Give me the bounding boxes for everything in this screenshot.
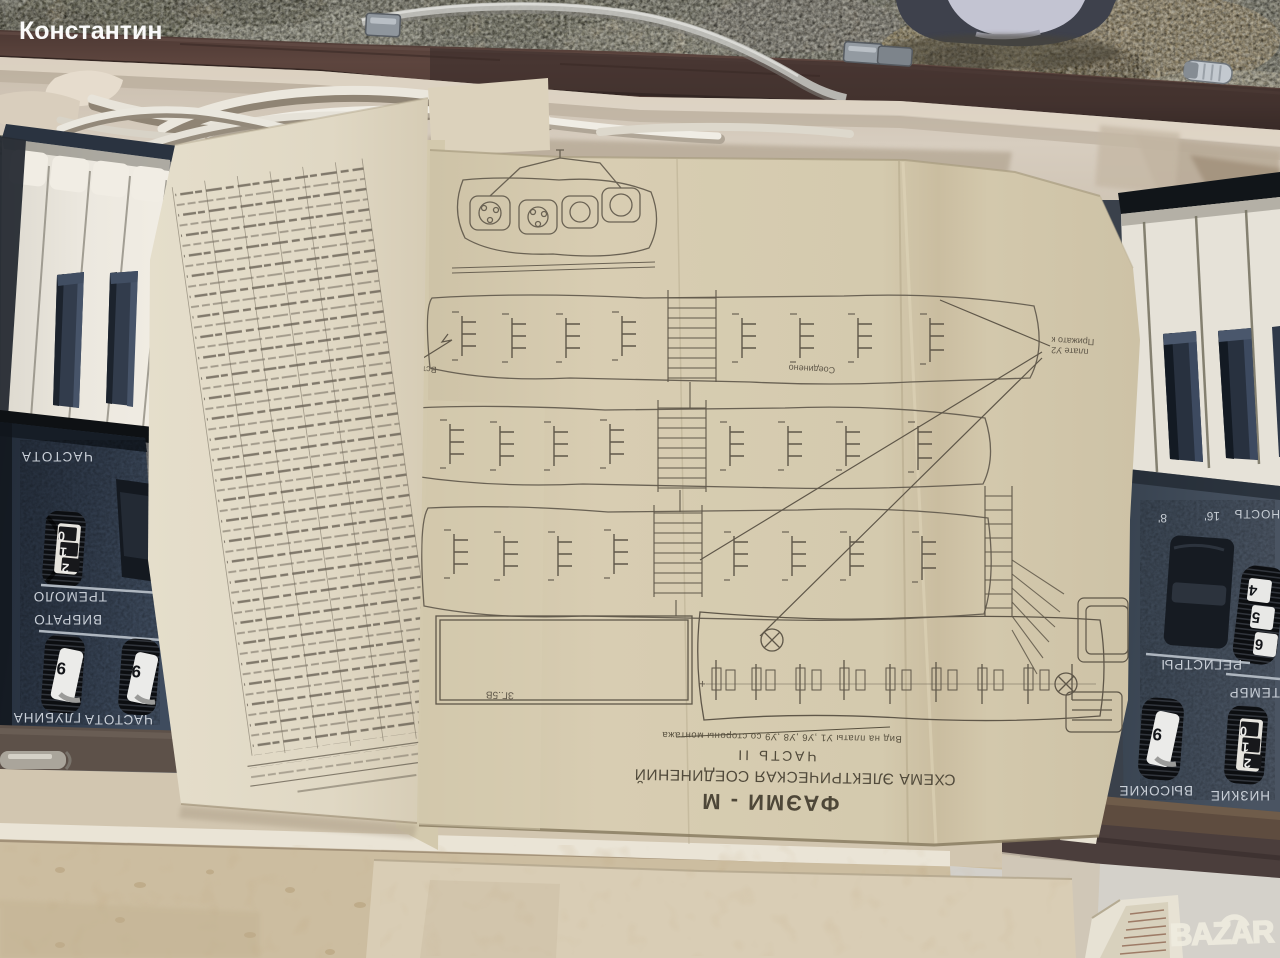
svg-text:ЧАСТОТА: ЧАСТОТА [84, 712, 153, 727]
svg-text:ТРЕМОЛО: ТРЕМОЛО [33, 589, 107, 604]
svg-text:9: 9 [131, 661, 142, 681]
svg-text:НИЗКИЕ: НИЗКИЕ [1210, 788, 1270, 803]
svg-text:НОСТЬ: НОСТЬ [1234, 507, 1280, 521]
svg-text:0: 0 [57, 528, 66, 544]
svg-text:РЕГИСТРЫ: РЕГИСТРЫ [1160, 657, 1242, 672]
svg-text:ГЛУБИНА: ГЛУБИНА [13, 710, 81, 725]
svg-text:8': 8' [1158, 511, 1167, 525]
svg-text:9: 9 [1152, 724, 1163, 744]
svg-text:1: 1 [59, 544, 68, 560]
svg-text:2: 2 [1243, 755, 1252, 771]
svg-text:9: 9 [56, 658, 67, 678]
svg-text:1: 1 [1241, 739, 1250, 755]
svg-text:ЧАСТОТА: ЧАСТОТА [21, 449, 93, 464]
svg-text:0: 0 [1239, 723, 1248, 739]
svg-text:Константин: Константин [19, 17, 163, 45]
svg-text:2: 2 [61, 560, 70, 576]
svg-text:BAZAR: BAZAR [1169, 914, 1274, 953]
svg-text:ВИБРАТО: ВИБРАТО [33, 612, 102, 627]
svg-text:ТЕМБР: ТЕМБР [1229, 685, 1280, 700]
svg-text:+: + [699, 677, 706, 691]
svg-text:16': 16' [1204, 509, 1220, 523]
svg-text:ФАЭМИ - М: ФАЭМИ - М [700, 789, 840, 816]
svg-text:ВЫСОКИЕ: ВЫСОКИЕ [1119, 783, 1193, 798]
svg-text:ЗГ..5В: ЗГ..5В [485, 689, 514, 701]
svg-text:плате У2: плате У2 [1051, 345, 1089, 357]
svg-text:ЧАСТЬ II: ЧАСТЬ II [735, 747, 817, 764]
